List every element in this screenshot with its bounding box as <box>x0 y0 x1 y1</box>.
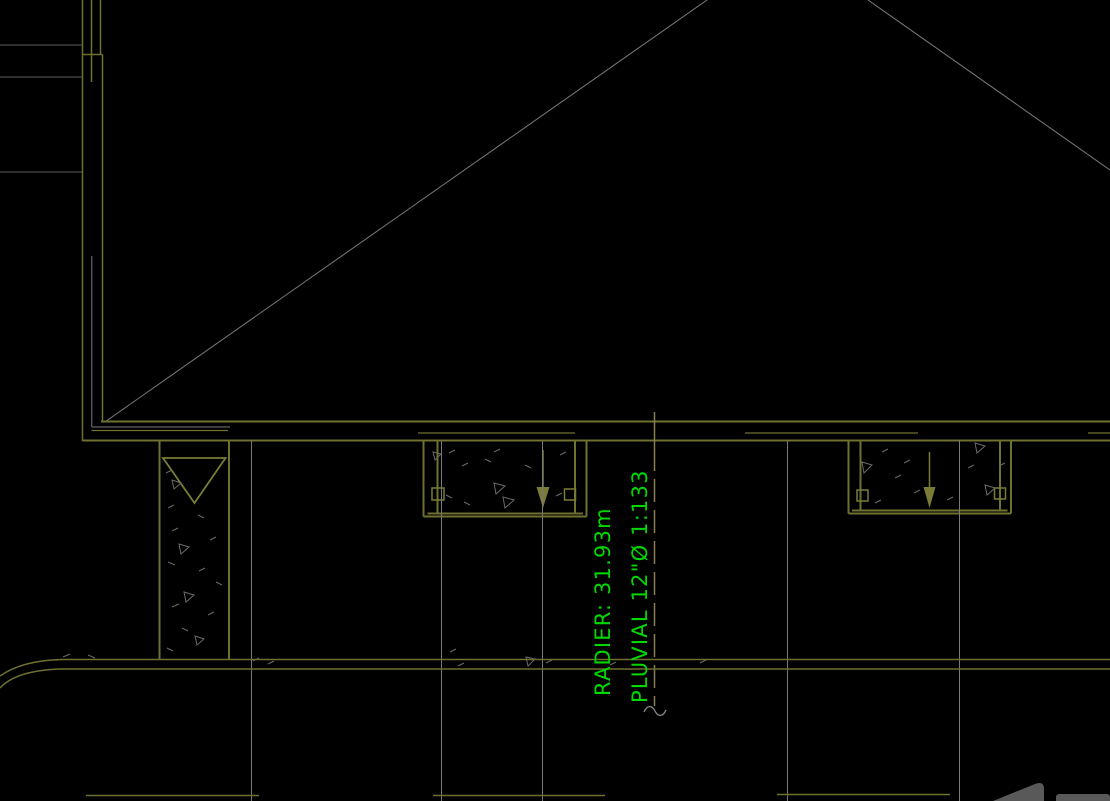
flow-arrow-icon <box>924 487 936 508</box>
anchor-square-icon <box>565 489 576 500</box>
annotation-radier-label: RADIER: 31.93m <box>591 507 615 696</box>
roof-hip-lines <box>92 0 1110 427</box>
gravel-hatch <box>63 443 1005 666</box>
planter-strip <box>160 441 230 659</box>
curb-lines <box>0 660 1110 689</box>
cad-viewport[interactable]: RADIER: 31.93m PLUVIAL 12"Ø 1:133 <box>0 0 1110 801</box>
pipe-break-icon <box>644 707 666 716</box>
facade-band-lines <box>83 422 1110 441</box>
annotation-pluvial-label: PLUVIAL 12"Ø 1:133 <box>628 469 652 703</box>
watermark-logo-icon <box>993 783 1110 801</box>
west-wall-lines <box>83 0 103 441</box>
drawing-linework <box>0 0 1110 801</box>
interior-reference-lines <box>0 45 82 172</box>
catch-basin-middle <box>424 441 587 517</box>
anchor-square-icon <box>857 490 868 501</box>
catch-basin-right <box>849 440 1012 514</box>
lot-line-segments <box>86 795 950 796</box>
